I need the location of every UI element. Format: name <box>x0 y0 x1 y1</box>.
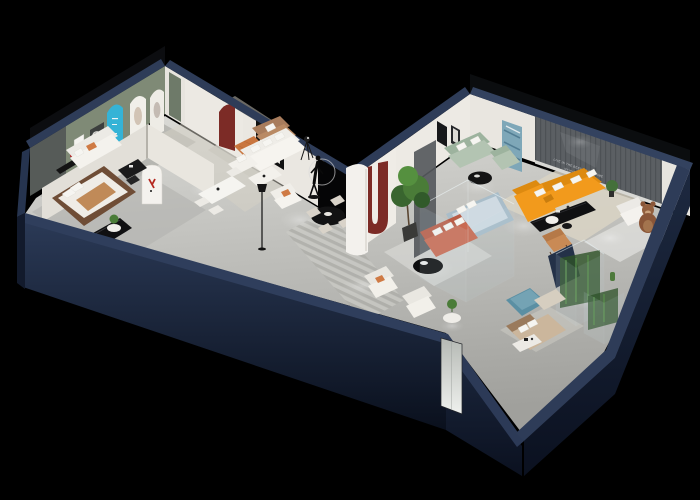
white-curved-partition <box>346 164 368 256</box>
logo-pillar <box>142 165 162 204</box>
floorplan-render: LIVE IN THE BEST OF THE TIME MY WARM HOU… <box>0 0 700 500</box>
red-arch-niche <box>219 104 235 151</box>
floorplan-render-stage: LIVE IN THE BEST OF THE TIME MY WARM HOU… <box>0 0 700 500</box>
mirror-door-panel <box>441 338 462 414</box>
black-round-side-table <box>562 223 572 229</box>
green-door-panel <box>169 72 181 122</box>
cactus <box>610 272 615 281</box>
white-round-side-table <box>546 216 559 224</box>
black-round-table <box>468 172 492 185</box>
